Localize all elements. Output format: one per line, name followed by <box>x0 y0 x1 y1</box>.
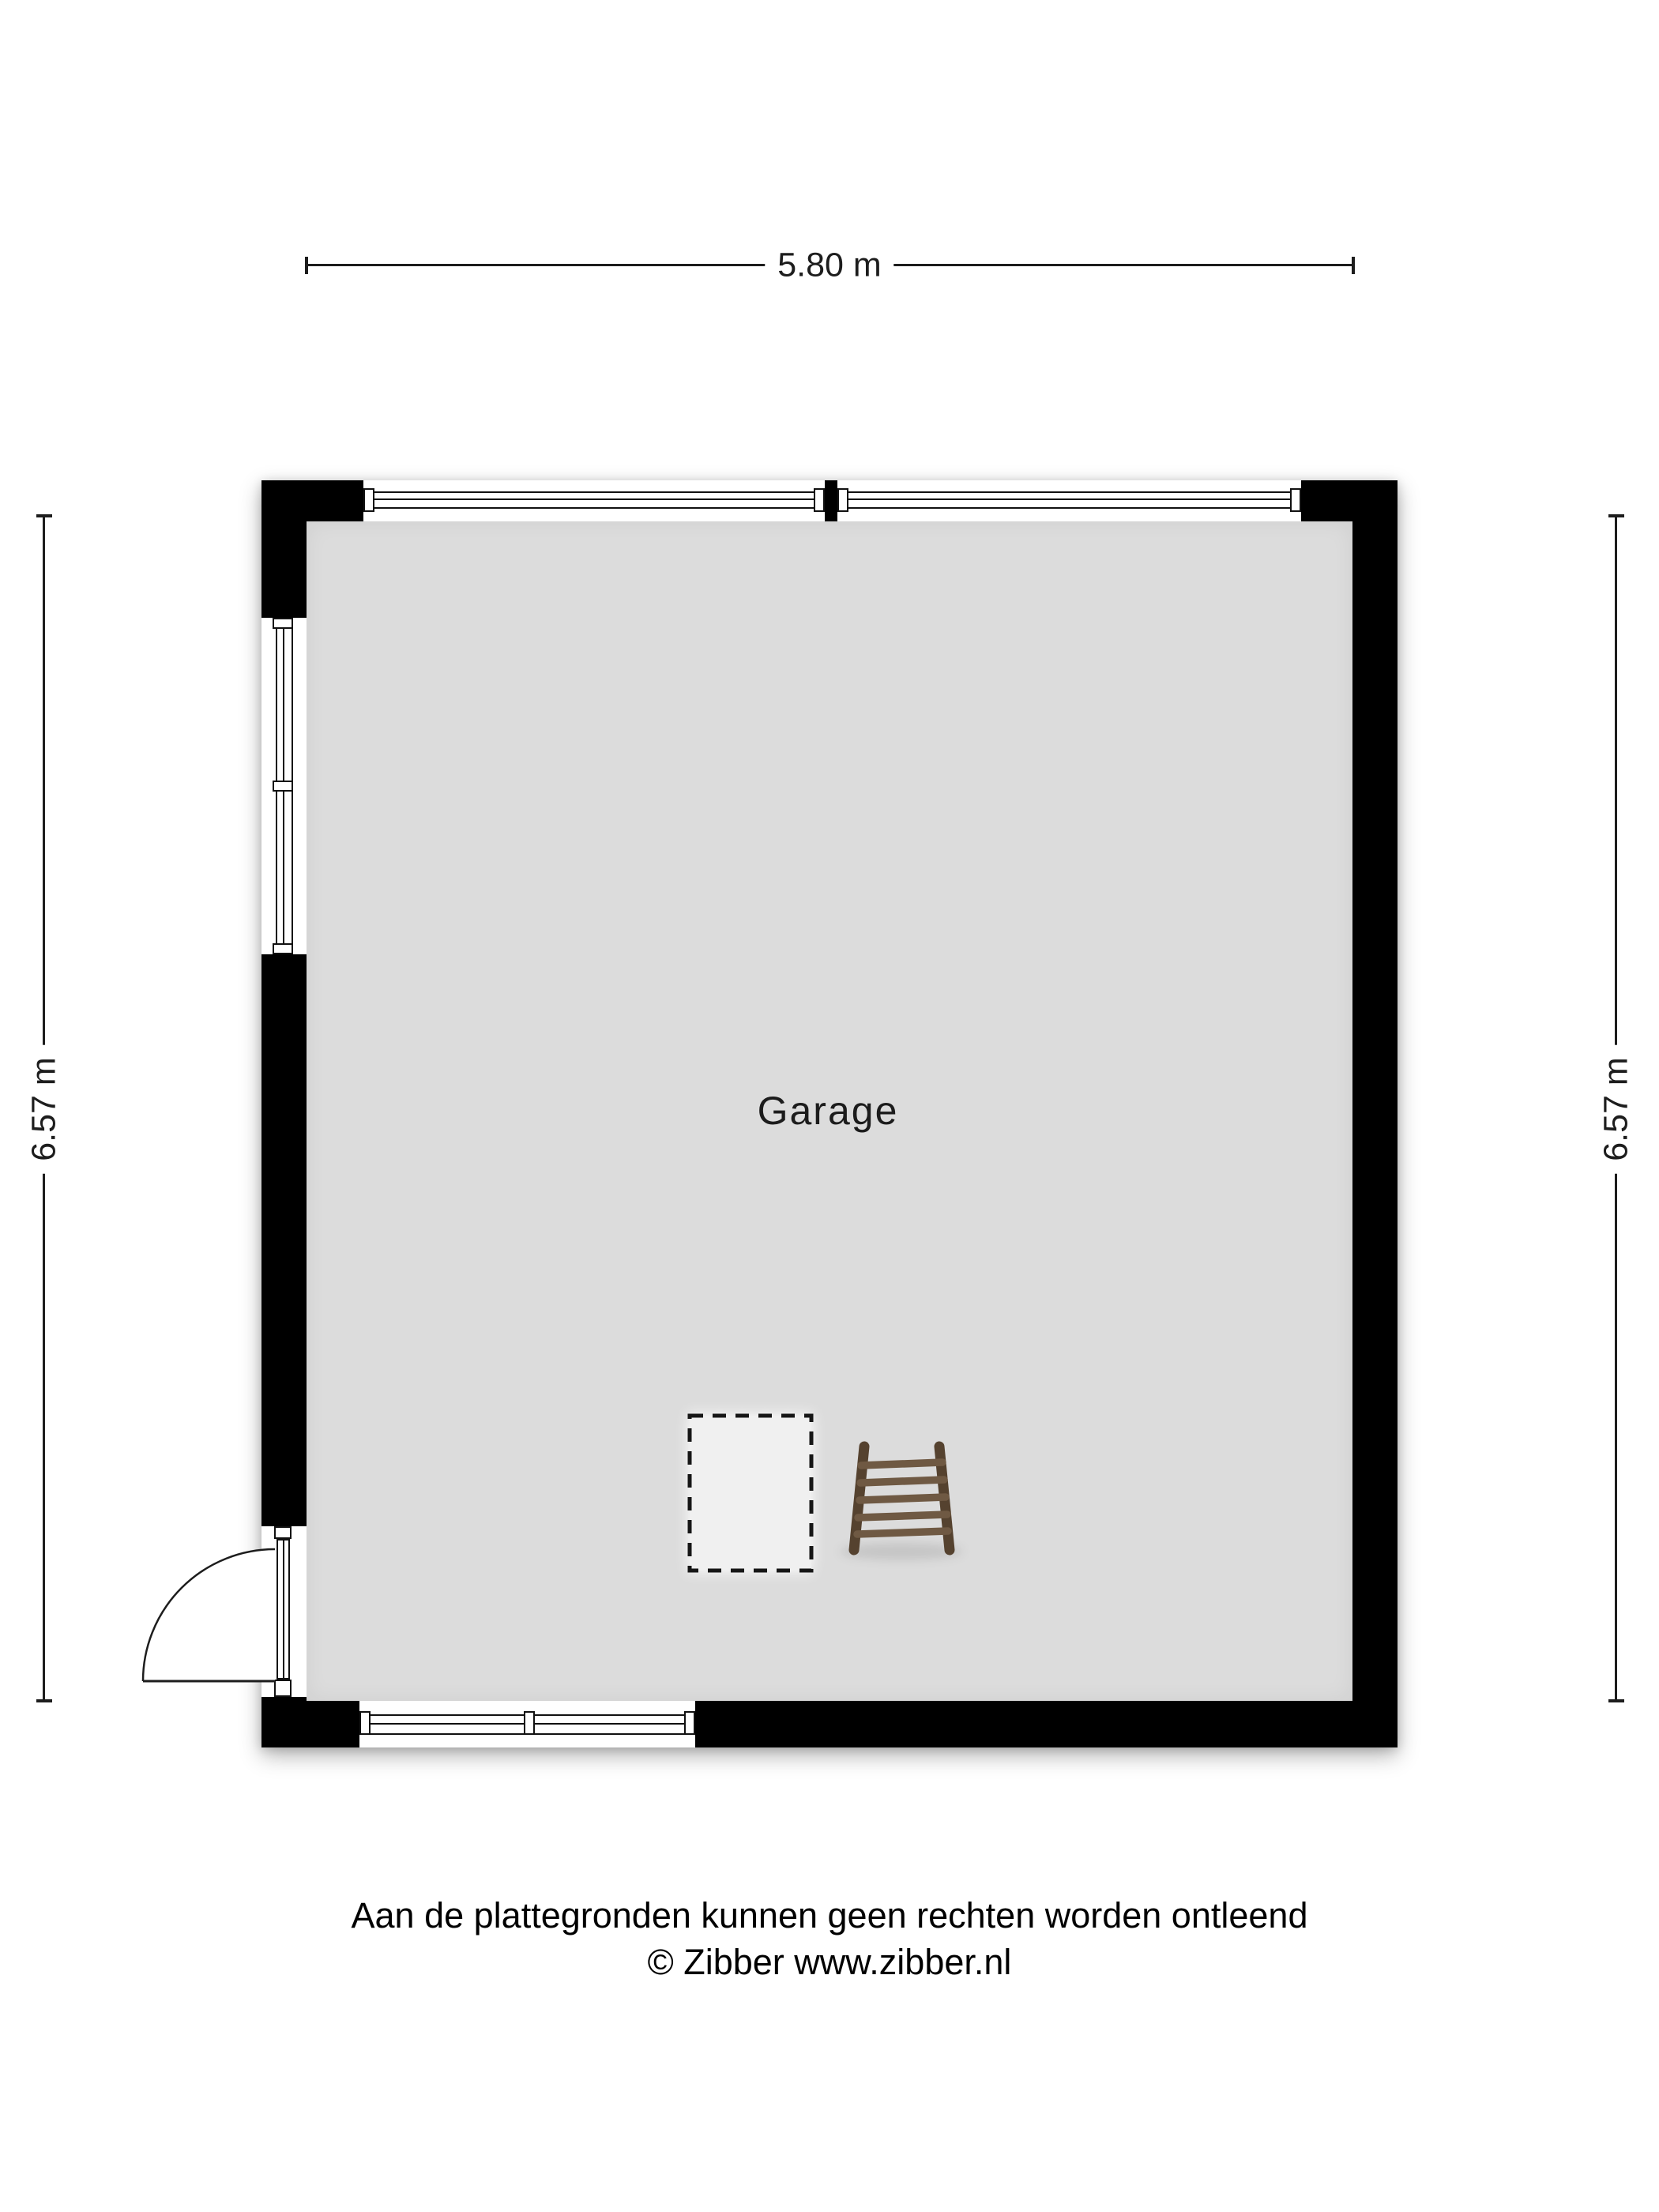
wall-segment-left-top <box>261 480 307 618</box>
wall-pier-top <box>825 480 837 521</box>
footer-disclaimer: Aan de plattegronden kunnen geen rechten… <box>0 1893 1659 1939</box>
wall-segment-bottom-left-corner <box>261 1701 359 1747</box>
dimension-tick <box>1608 514 1624 517</box>
dimension-tick <box>1352 257 1355 274</box>
window-cap <box>363 488 374 512</box>
window-cap <box>1290 488 1301 512</box>
window-cap <box>837 488 848 512</box>
door-leaf <box>276 1539 290 1680</box>
door-jamb-cap <box>274 1526 292 1539</box>
window-bottom <box>359 1701 695 1747</box>
wall-segment-bottom-right <box>695 1701 1398 1747</box>
wall-segment-left-middle <box>261 954 307 1526</box>
wall-segment-right <box>1352 480 1398 1747</box>
window-transom <box>273 781 293 792</box>
window-left <box>261 618 307 954</box>
window-glazing <box>837 491 1301 509</box>
window-glazing <box>363 491 825 509</box>
window-top-left <box>363 480 825 521</box>
footer-copyright: © Zibber www.zibber.nl <box>0 1939 1659 1986</box>
dimension-tick <box>36 1699 52 1702</box>
dimension-tick <box>305 257 308 274</box>
footer: Aan de plattegronden kunnen geen rechten… <box>0 1893 1659 1985</box>
window-mullion <box>524 1711 535 1735</box>
window-cap <box>684 1711 695 1735</box>
window-cap <box>814 488 825 512</box>
door-swing-arc <box>143 1549 275 1681</box>
dimension-label-top: 5.80 m <box>765 245 893 287</box>
dimension-tick <box>1608 1699 1624 1702</box>
dimension-label-right: 6.57 m <box>1596 1044 1638 1173</box>
window-top-right <box>837 480 1301 521</box>
door-jamb-cap <box>274 1680 292 1697</box>
window-cap <box>359 1711 371 1735</box>
window-cap <box>273 943 293 954</box>
dimension-label-left: 6.57 m <box>24 1044 66 1173</box>
door-swing-area <box>143 1549 275 1681</box>
window-cap <box>273 618 293 629</box>
dimension-tick <box>36 514 52 517</box>
room-label: Garage <box>758 1088 899 1134</box>
